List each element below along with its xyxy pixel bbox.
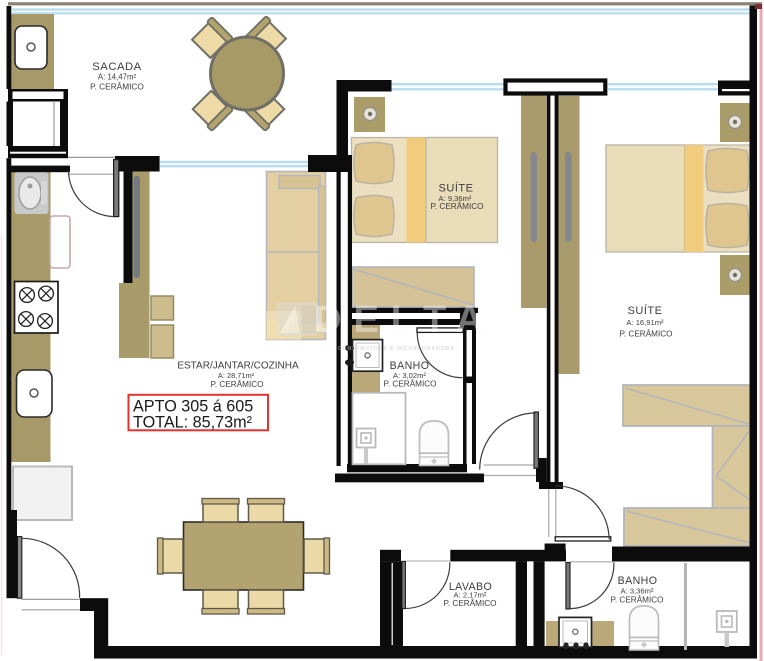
svg-text:A: 3,36m²: A: 3,36m²	[621, 586, 654, 595]
svg-text:A: 28,71m²: A: 28,71m²	[218, 371, 255, 380]
svg-text:A: 16,91m²: A: 16,91m²	[626, 318, 664, 327]
svg-text:P. CERÂMICO: P. CERÂMICO	[383, 379, 436, 389]
svg-text:ESTAR/JANTAR/COZINHA: ESTAR/JANTAR/COZINHA	[177, 360, 299, 371]
svg-text:P. CERÂMICO: P. CERÂMICO	[210, 379, 263, 389]
svg-text:A: 14,47m²: A: 14,47m²	[98, 73, 137, 82]
svg-text:CONSTRUTORA E INCORPORADORA: CONSTRUTORA E INCORPORADORA	[338, 346, 455, 352]
svg-text:A: 2,17m²: A: 2,17m²	[454, 591, 487, 600]
svg-text:P. CERÂMICO: P. CERÂMICO	[619, 328, 672, 338]
svg-text:TOTAL: 85,73m²: TOTAL: 85,73m²	[133, 413, 253, 431]
svg-text:SUÍTE: SUÍTE	[439, 182, 474, 195]
svg-text:P. CERÂMICO: P. CERÂMICO	[610, 595, 663, 605]
svg-text:P. CERÂMICO: P. CERÂMICO	[90, 81, 144, 91]
svg-text:SACADA: SACADA	[92, 61, 141, 73]
svg-text:P. CERÂMICO: P. CERÂMICO	[443, 598, 496, 608]
svg-text:SUÍTE: SUÍTE	[628, 304, 663, 317]
svg-text:A: 3,02m²: A: 3,02m²	[393, 371, 426, 380]
svg-text:DELTA: DELTA	[314, 299, 495, 341]
svg-text:P. CERÂMICO: P. CERÂMICO	[430, 201, 483, 211]
